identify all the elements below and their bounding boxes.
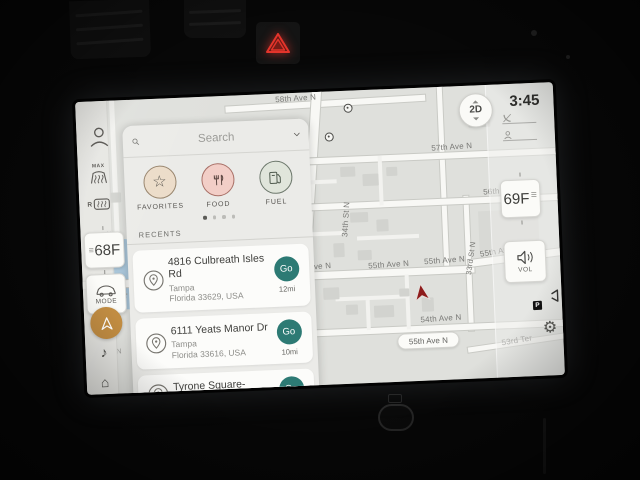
media-tab[interactable]: ♪ [100,344,108,360]
phone-status-icon [502,113,512,123]
home-tab[interactable]: ⌂ [100,374,109,390]
go-button[interactable]: Go [276,319,302,345]
street-label: 34th St N [340,202,351,238]
map-building [399,288,409,296]
map-building [333,243,345,257]
temp-unit: F [111,242,121,257]
parking-camera-button[interactable]: P [535,287,560,308]
map-building [340,166,355,177]
glovebox-icon [388,394,402,403]
max-defrost-button[interactable]: MAX [89,163,109,186]
search-input[interactable] [139,129,293,147]
recent-destination-item[interactable]: Tyrone Square- South Go [138,368,315,398]
search-panel: ☆ FAVORITES FOOD [122,118,320,398]
star-icon: ☆ [152,174,167,191]
bus-stop-icon [325,132,334,141]
map-building [386,167,397,176]
map-building [323,287,339,300]
category-fuel[interactable]: FUEL [247,160,305,207]
air-vent [69,0,151,59]
location-pin-icon [141,269,166,293]
current-street-label: 55th Ave N [409,335,448,346]
recent-destination-item[interactable]: 4816 Culbreath Isles Rd Tampa Florida 33… [132,243,310,313]
rear-defrost-button[interactable]: R [87,197,110,212]
category-label: FUEL [266,198,288,206]
driver-temp-button[interactable]: 68F [84,231,125,269]
destination-title: Tyrone Square- South [173,377,275,398]
hazard-lights-button[interactable] [256,22,300,64]
category-favorites[interactable]: ☆ FAVORITES [131,165,189,212]
windshield-defrost-icon [89,169,109,186]
street-label: 55th Ave N [424,254,466,266]
location-pin-icon [146,382,171,398]
page-dot [212,215,216,219]
page-dot [222,215,226,219]
map-building [376,219,388,231]
air-vent [184,0,246,38]
hazard-triangle-icon [265,31,291,55]
clock: 3:45 [495,91,554,110]
profile-button[interactable] [88,125,110,149]
rear-defrost-icon [93,197,111,212]
speaker-icon [515,249,536,266]
map-building [358,250,372,261]
driver-temp-value: 68 [94,242,111,258]
music-note-icon: ♪ [100,344,108,360]
seat-heat-icon [530,190,537,198]
category-label: FAVORITES [137,203,184,212]
car-icon [94,283,119,298]
category-label: FOOD [206,201,230,209]
chevron-down-icon [473,117,479,120]
location-pin-icon [144,331,169,355]
map-road [357,234,419,241]
dash-detail [566,55,570,59]
car-dashboard: 58th Ave N 57th Ave N 56th Ave N 55th Av… [0,0,640,480]
fuel-pump-icon [267,169,284,186]
page-dot [203,216,207,220]
vehicle-position-arrow [410,280,435,309]
go-button[interactable]: Go [278,376,304,398]
page-dots [126,211,312,222]
current-street-indicator: 55th Ave N [397,331,460,350]
chevron-up-icon [472,100,478,103]
settings-button[interactable]: ⚙ [543,317,558,338]
map-building [374,305,394,318]
rear-defrost-label: R [87,201,92,208]
person-icon [88,125,110,149]
phone-status [502,111,536,124]
parking-badge: P [533,301,542,310]
glovebox-release-button[interactable] [378,404,414,431]
food-icon [209,171,226,188]
profile-status [503,128,537,141]
volume-button[interactable]: VOL [503,240,547,284]
mode-label: MODE [96,298,118,306]
destination-distance: 10mi [281,347,298,357]
street-label: 54th Ave N [420,313,462,325]
temp-unit: F [520,191,530,206]
map-road [366,300,371,330]
dash-detail [531,30,537,36]
go-button[interactable]: Go [273,256,299,282]
map-road [437,87,450,269]
destination-distance: 12mi [279,284,296,294]
map-building [362,174,378,187]
bus-stop-icon [343,104,352,113]
passenger-temp-value: 69 [503,191,520,207]
navigation-arrow-icon [98,314,116,332]
gear-icon: ⚙ [543,319,558,337]
home-icon: ⌂ [100,374,109,390]
chevron-down-icon[interactable] [293,131,300,138]
map-view-toggle-label: 2D [469,105,482,116]
category-food[interactable]: FOOD [189,162,247,209]
infotainment-screen: 58th Ave N 57th Ave N 56th Ave N 55th Av… [72,79,568,398]
page-dot [231,215,235,219]
passenger-temp-button[interactable]: 69F [500,179,542,219]
profile-status-icon [503,130,513,140]
volume-label: VOL [518,266,533,274]
map-building [350,212,368,223]
destination-title: 4816 Culbreath Isles Rd [168,252,270,281]
recent-destination-item[interactable]: 6111 Yeats Manor Dr Tampa Florida 33616,… [135,311,313,369]
map-road [225,95,425,113]
map-building [346,304,358,314]
dash-trim [543,418,546,474]
